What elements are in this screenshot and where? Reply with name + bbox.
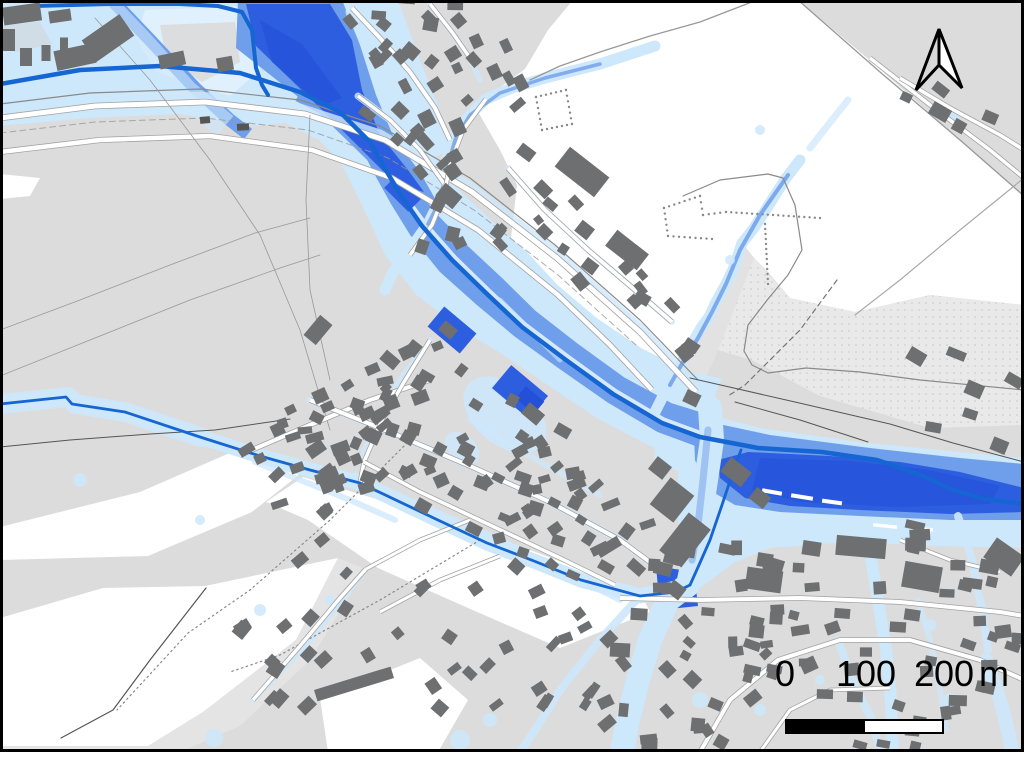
svg-text:0: 0: [775, 653, 795, 694]
svg-text:m: m: [979, 653, 1009, 694]
svg-text:100: 100: [836, 653, 896, 694]
svg-text:200: 200: [914, 653, 974, 694]
